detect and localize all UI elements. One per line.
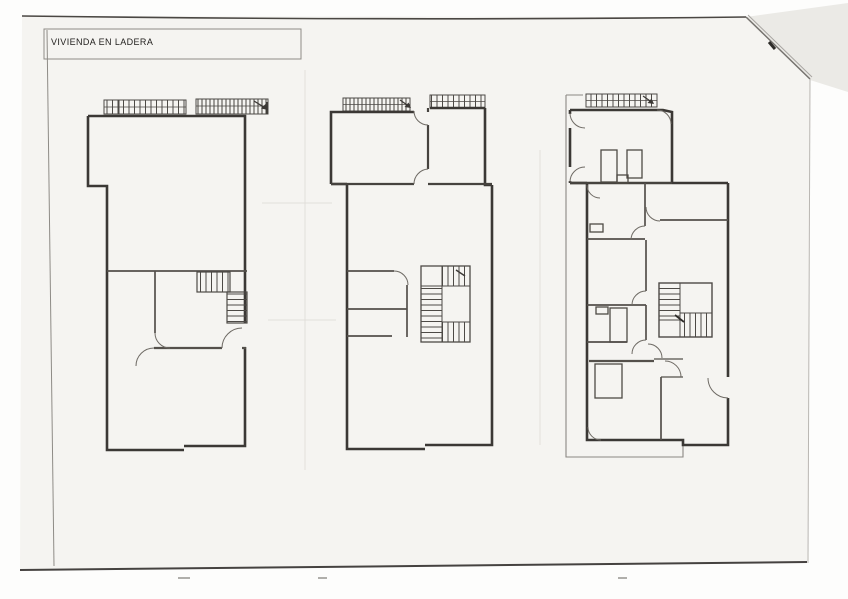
scan-canvas: VIVIENDA EN LADERA xyxy=(0,0,848,599)
entry-steps-hatch xyxy=(104,99,268,114)
drawing-title: VIVIENDA EN LADERA xyxy=(51,37,153,47)
entry-steps-hatch xyxy=(586,94,657,107)
scanned-architectural-drawing: VIVIENDA EN LADERA xyxy=(0,0,848,599)
paper-sheet xyxy=(20,16,810,570)
